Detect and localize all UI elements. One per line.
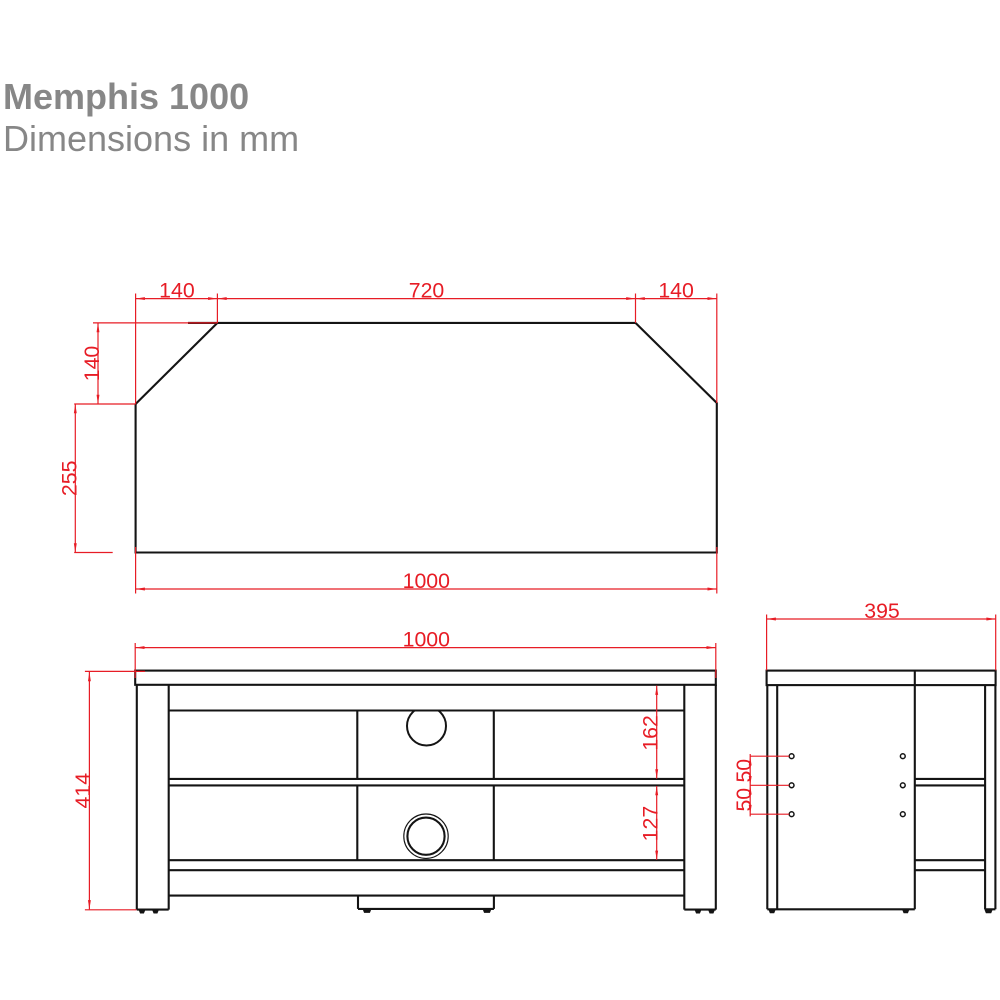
svg-text:414: 414 bbox=[71, 773, 95, 809]
svg-text:140: 140 bbox=[159, 278, 195, 302]
svg-text:Dimensions in mm: Dimensions in mm bbox=[3, 118, 299, 159]
svg-text:1000: 1000 bbox=[403, 569, 451, 593]
svg-text:50: 50 bbox=[732, 788, 756, 812]
svg-text:Memphis 1000: Memphis 1000 bbox=[3, 76, 249, 117]
svg-text:50: 50 bbox=[732, 759, 756, 783]
svg-text:140: 140 bbox=[658, 278, 694, 302]
svg-text:162: 162 bbox=[639, 715, 663, 751]
svg-text:127: 127 bbox=[639, 806, 663, 842]
svg-text:395: 395 bbox=[864, 599, 900, 623]
svg-text:1000: 1000 bbox=[403, 628, 451, 652]
svg-text:720: 720 bbox=[409, 278, 445, 302]
svg-text:255: 255 bbox=[57, 461, 81, 497]
svg-text:140: 140 bbox=[80, 346, 104, 382]
